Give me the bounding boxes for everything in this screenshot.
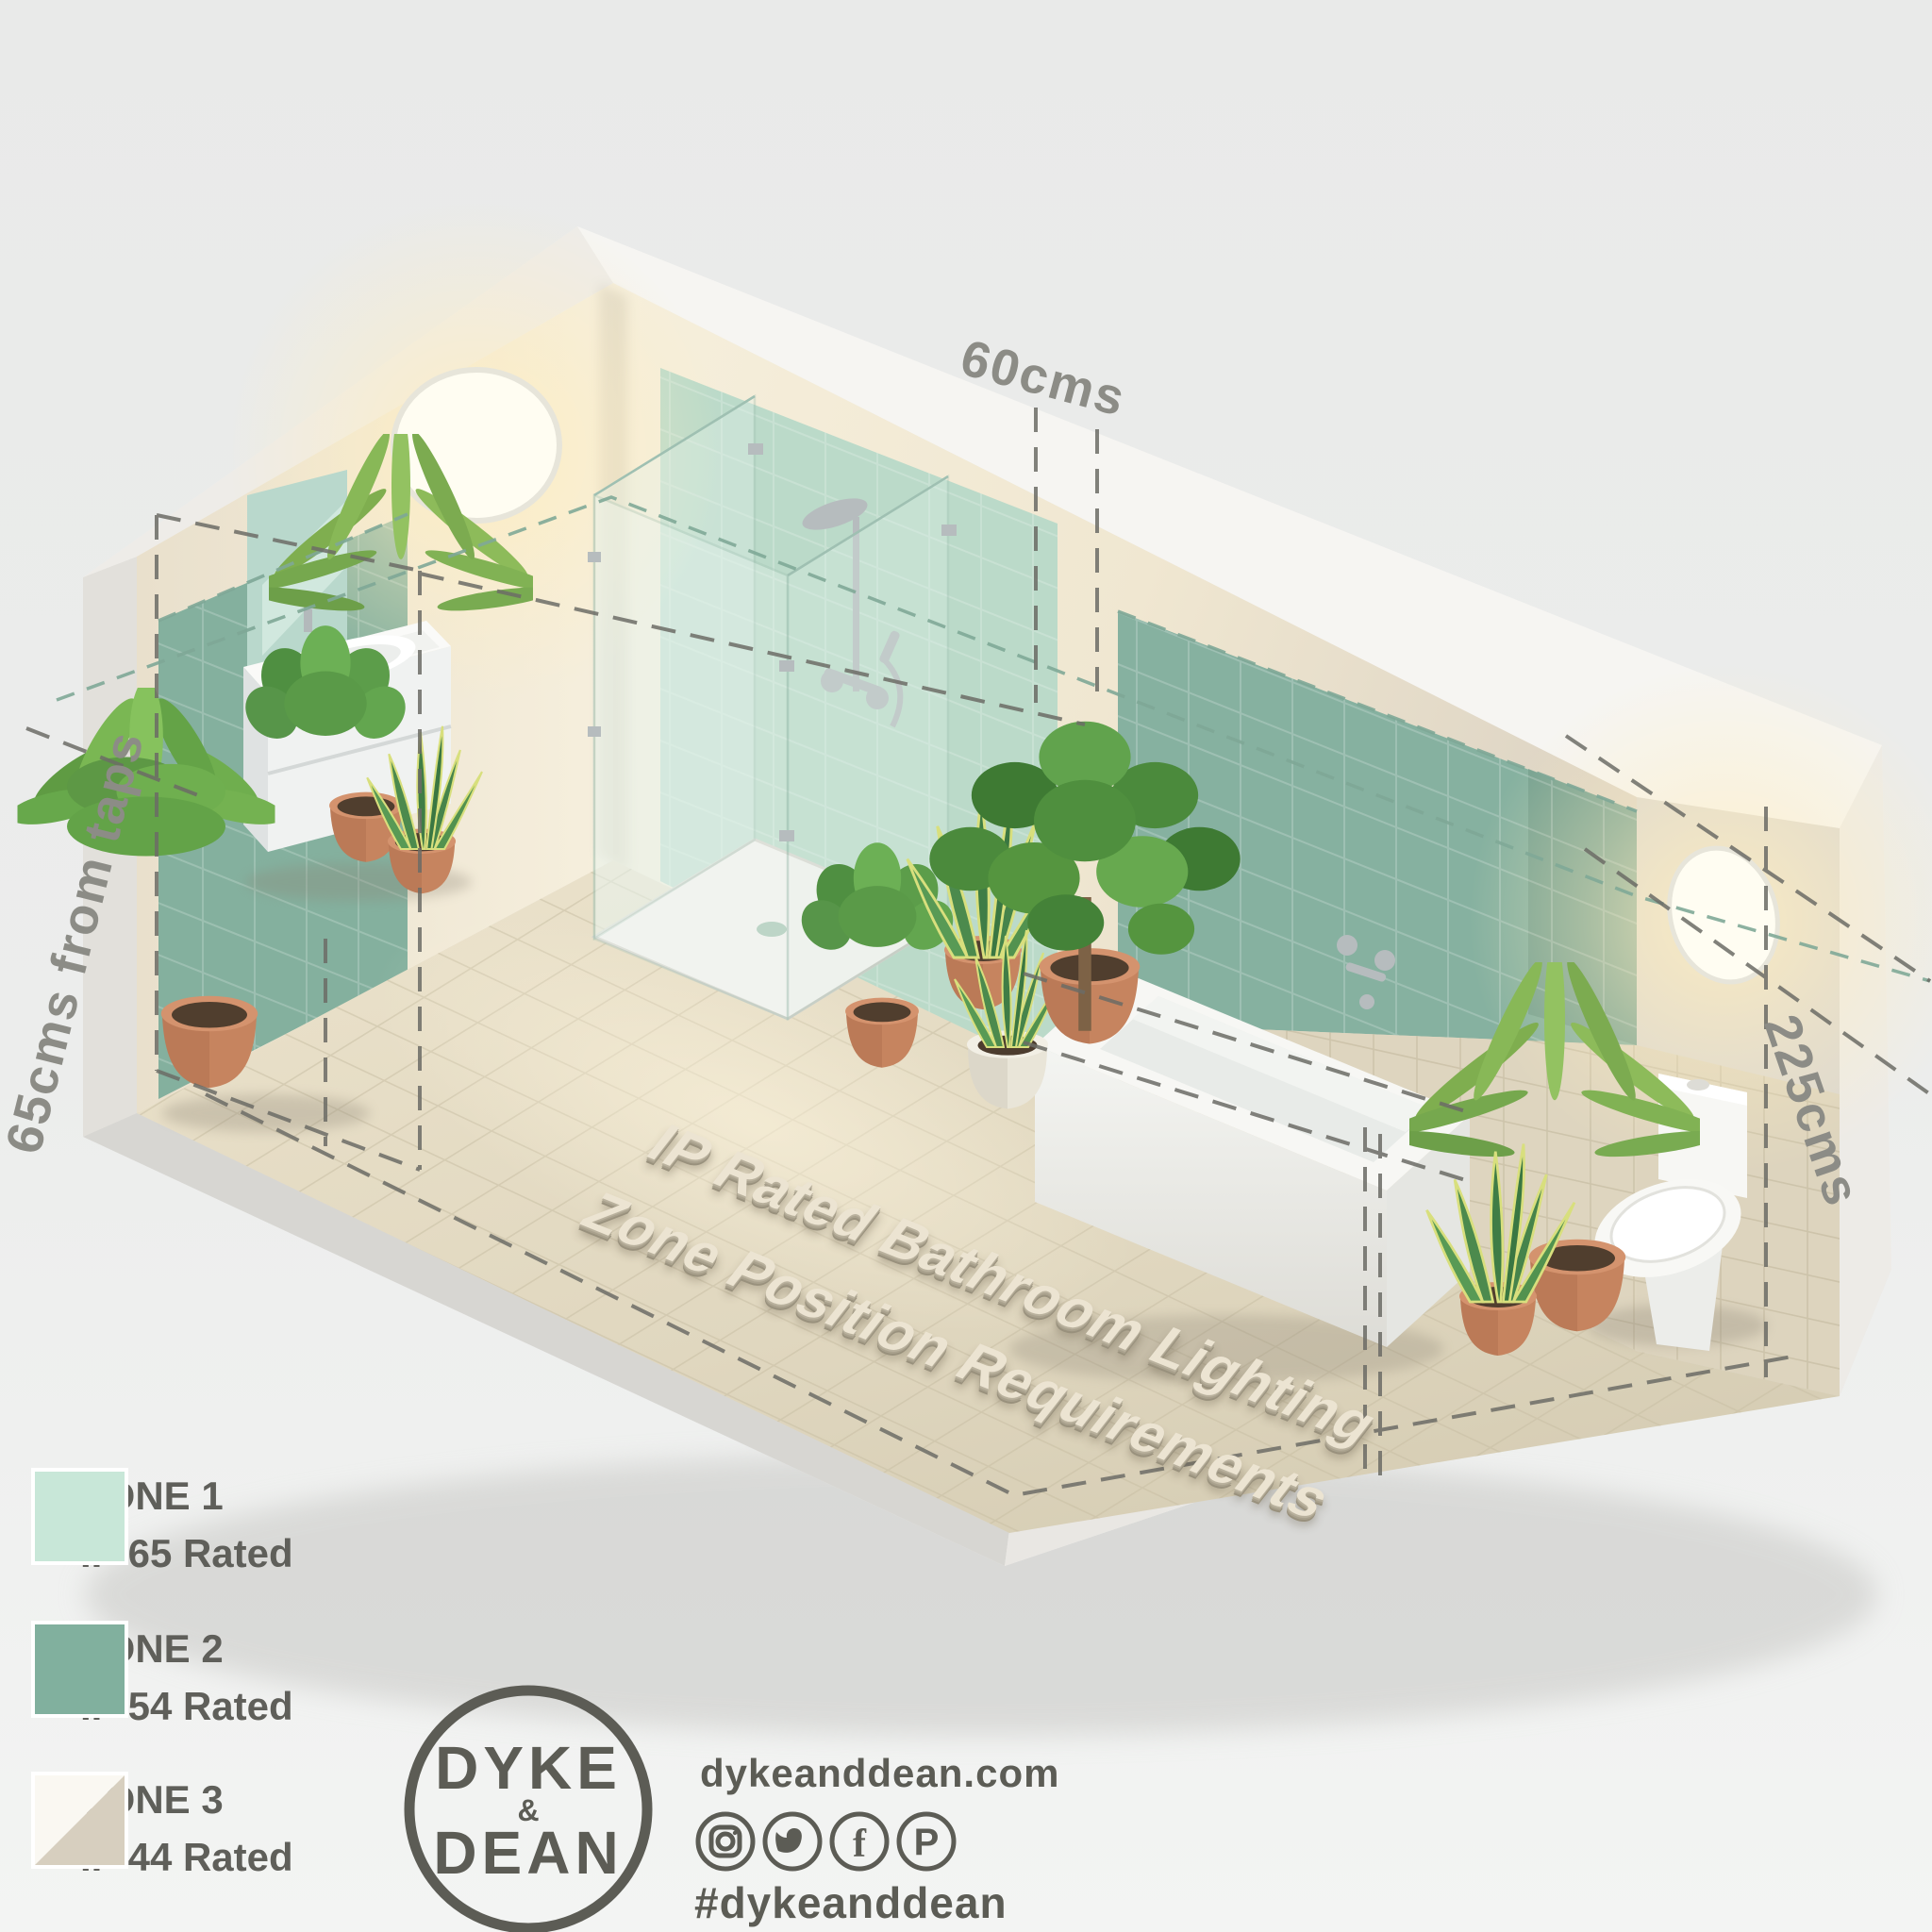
facebook-icon: f [832,1814,887,1869]
legend-zone1: ZONE 1 IP 65 Rated [31,1468,293,1583]
pinterest-icon: P [899,1814,954,1869]
twitter-icon [765,1814,820,1869]
instagram-icon [698,1814,753,1869]
svg-text:P: P [914,1822,940,1863]
zone1-swatch [31,1468,128,1565]
hashtag: #dykeanddean [694,1877,1008,1928]
legend-zone3: ZONE 3 IP 44 Rated [31,1772,293,1887]
logo-dyke: DYKE [435,1734,622,1802]
zone2-swatch [31,1621,128,1718]
legend-zone2: ZONE 2 IP 54 Rated [31,1621,293,1736]
poster-canvas: 60cms 225cms 65cms from taps IP Rated Ba… [0,0,1932,1932]
zone3-swatch [31,1772,128,1869]
website-url: dykeanddean.com [700,1751,1059,1796]
svg-text:f: f [853,1823,867,1866]
logo-dean: DEAN [433,1819,623,1887]
